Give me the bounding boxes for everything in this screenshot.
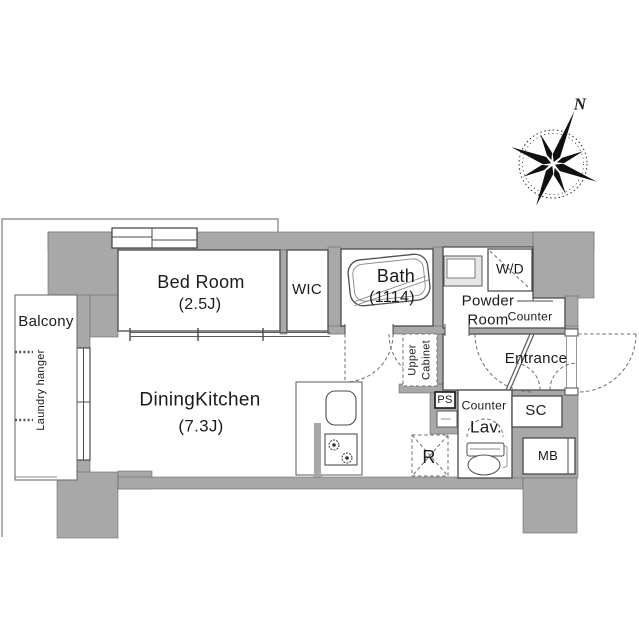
lav-counter-label: Counter	[462, 399, 507, 412]
entrance-label: Entrance	[505, 351, 567, 368]
sc-label: SC	[525, 403, 546, 420]
floor-plan: Bed Room (2.5J) WIC Bath (1114) PowderRo…	[0, 0, 639, 640]
bath-size: (1114)	[369, 289, 415, 307]
entrance-door-swing	[578, 334, 636, 392]
powder-vanity	[444, 256, 482, 286]
dining-kitchen-label: DiningKitchen	[139, 391, 260, 412]
stove	[325, 434, 357, 465]
dining-kitchen-size: (7.3J)	[178, 418, 223, 437]
upper-cabinet-label: UpperCabinet	[406, 340, 434, 380]
laundry-hanger-label: Laundry hanger	[35, 349, 47, 430]
refrigerator-label: R	[422, 448, 435, 468]
balcony-label: Balcony	[18, 314, 73, 331]
kitchen-counter	[296, 382, 362, 477]
powder-room-label: PowderRoom	[462, 292, 515, 330]
lav-side-counter	[437, 411, 457, 427]
bedroom-window	[112, 228, 197, 248]
balcony-window	[77, 348, 90, 460]
compass-icon	[494, 94, 618, 223]
bath-label: Bath	[377, 267, 415, 287]
powder-counter-label: Counter	[508, 310, 553, 323]
ps-label: PS	[437, 394, 452, 406]
wic-label: WIC	[292, 282, 322, 299]
mb-label: MB	[538, 449, 558, 463]
north-label: N	[574, 96, 587, 115]
kitchen-sink	[326, 391, 356, 425]
bed-room-label: Bed Room	[157, 273, 244, 293]
bed-room-size: (2.5J)	[179, 296, 222, 314]
kitchen-partition	[314, 423, 321, 477]
lav-label: Lav.	[470, 419, 502, 438]
wd-label: W/D	[496, 261, 524, 276]
